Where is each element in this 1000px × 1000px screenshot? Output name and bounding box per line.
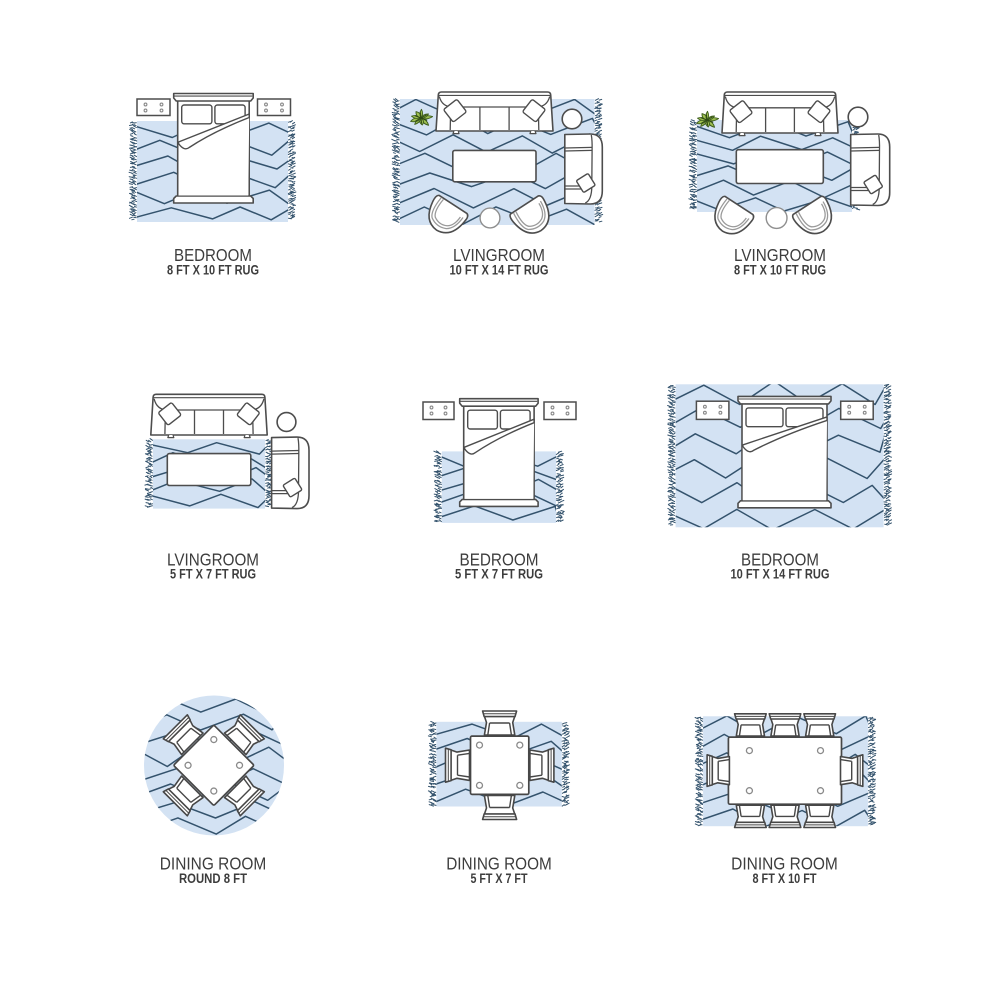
svg-text:ROUND 8 FT: ROUND 8 FT [179,871,248,886]
svg-text:5 FT X 7 FT RUG: 5 FT X 7 FT RUG [455,567,543,582]
svg-text:5 FT X 7 FT RUG: 5 FT X 7 FT RUG [170,567,256,582]
svg-text:5 FT X 7 FT: 5 FT X 7 FT [471,871,529,886]
svg-text:8 FT X 10 FT RUG: 8 FT X 10 FT RUG [167,263,259,278]
svg-text:10 FT X 14 FT RUG: 10 FT X 14 FT RUG [450,263,549,278]
svg-text:8 FT X 10 FT RUG: 8 FT X 10 FT RUG [734,263,826,278]
svg-text:8 FT X 10 FT: 8 FT X 10 FT [753,871,818,886]
svg-text:10 FT X 14 FT RUG: 10 FT X 14 FT RUG [731,567,830,582]
